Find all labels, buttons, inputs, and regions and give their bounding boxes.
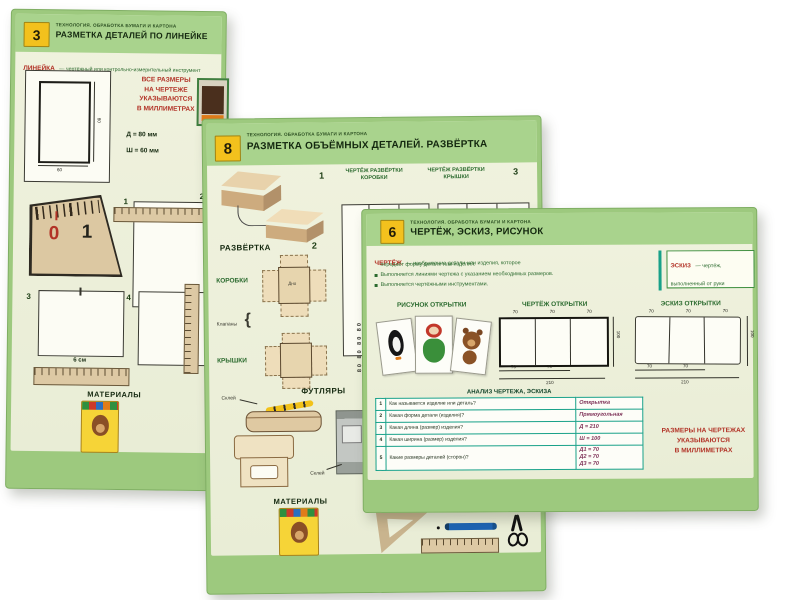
sketch-column-title: ЭСКИЗ ОТКРЫТКИ xyxy=(635,300,747,308)
box-stripe-decor xyxy=(280,509,318,517)
scissors-icon xyxy=(507,514,527,546)
width-value: Ш = 60 мм xyxy=(126,147,159,154)
ruler-icon xyxy=(33,367,129,386)
dimension-line xyxy=(613,317,614,367)
pencil-case-icon xyxy=(246,411,322,433)
poster-3: 3 ТЕХНОЛОГИЯ. ОБРАБОТКА БУМАГИ И КАРТОНА… xyxy=(5,9,227,492)
drawing-definition-line-2: передаёт форму детали или изделия. xyxy=(380,261,475,267)
dimension-line xyxy=(38,165,88,167)
bottom-label: Дно xyxy=(288,281,296,286)
picture-column-title: РИСУНОК ОТКРЫТКИ xyxy=(377,301,487,309)
glue-label: Склей xyxy=(221,395,235,401)
section-2-number: 2 xyxy=(312,241,317,251)
lid-development-column-title: ЧЕРТЁЖ РАЗВЁРТКИ КРЫШКИ xyxy=(425,167,487,182)
row-number: 4 xyxy=(376,434,386,446)
poster-3-title: РАЗМЕТКА ДЕТАЛЕЙ ПО ЛИНЕЙКЕ xyxy=(56,29,208,41)
postcard-panel-penguin xyxy=(376,318,419,376)
row-number: 1 xyxy=(376,398,386,410)
question-cell: Какая длина (размер) изделия? xyxy=(386,421,576,434)
postcard-picture xyxy=(377,311,489,378)
lid-label: КРЫШКИ xyxy=(217,357,247,364)
postcard-panel-bear xyxy=(450,318,492,376)
dimension-line xyxy=(747,316,748,366)
analysis-table-title: АНАЛИЗ ЧЕРТЕЖА, ЭСКИЗА xyxy=(375,389,643,396)
lid-development-icon xyxy=(265,332,328,391)
series-line: ТЕХНОЛОГИЯ. ОБРАБОТКА БУМАГИ И КАРТОНА xyxy=(410,219,531,225)
poster-8-number-tab: 8 xyxy=(215,135,241,161)
poster-6-sheet: 6 ТЕХНОЛОГИЯ. ОБРАБОТКА БУМАГИ И КАРТОНА… xyxy=(366,212,753,480)
poster-3-number-tab: 3 xyxy=(23,22,49,47)
millimeters-note: РАЗМЕРЫ НА ЧЕРТЕЖАХ УКАЗЫВАЮТСЯ В МИЛЛИМ… xyxy=(653,426,753,457)
drawing-column-title: ЧЕРТЁЖ ОТКРЫТКИ xyxy=(499,301,611,309)
row-number: 3 xyxy=(376,422,386,434)
red-tick-mark xyxy=(55,211,57,220)
row-number: 5 xyxy=(376,446,386,470)
answer-cell: Открытка xyxy=(576,397,643,409)
rectangle-drawing-panel: 80 60 xyxy=(24,70,111,183)
bullet-icon xyxy=(375,274,378,277)
bullet-icon xyxy=(375,284,378,287)
dimension-line xyxy=(499,370,570,371)
segment-dimension-label: 70 xyxy=(647,364,652,369)
postcard-panel-matryoshka xyxy=(415,316,453,374)
fold-dimension-label: 70 xyxy=(587,309,592,314)
sketch-definition-box: ЭСКИЗ — чертёж, выполненный от руки xyxy=(666,250,754,288)
bear-illustration xyxy=(91,415,108,436)
box-development-icon: Дно xyxy=(262,254,327,317)
answer-line: Д3 = 70 xyxy=(580,460,640,467)
box-label: КОРОБКИ xyxy=(216,277,248,284)
height-dimension-label: 100 xyxy=(750,330,755,338)
dimension-line xyxy=(93,82,95,162)
pointer-line xyxy=(240,399,258,404)
ruler-closeup-face: 0 1 xyxy=(31,196,121,274)
materials-heading: МАТЕРИАЛЫ xyxy=(11,389,217,401)
note-line: РАЗМЕРЫ НА ЧЕРТЕЖАХ xyxy=(653,426,753,437)
answer-cell: Д = 210 xyxy=(576,421,643,433)
brace-icon: } xyxy=(245,311,251,329)
vertical-ruler-icon xyxy=(183,284,199,374)
pencil-tip-icon xyxy=(437,526,440,529)
fold-dimension-label: 70 xyxy=(649,309,654,314)
note-line: В МИЛЛИМЕТРАХ xyxy=(653,446,753,457)
ruler-digit-0: 0 xyxy=(49,223,60,245)
materials-heading: МАТЕРИАЛЫ xyxy=(240,496,360,506)
divider-bar xyxy=(658,250,661,290)
segment-dimension-label: 70 xyxy=(511,364,516,369)
fold-dimension-label: 70 xyxy=(513,309,518,314)
section-1-number: 1 xyxy=(319,171,324,181)
postcard-drawing: 70 70 70 100 70 70 210 xyxy=(499,309,621,388)
question-cell: Какая форма детали (изделия)? xyxy=(386,409,576,422)
poster-6-title: ЧЕРТЁЖ, ЭСКИЗ, РИСУНОК xyxy=(410,226,543,238)
fold-dimension-label: 70 xyxy=(686,308,691,313)
answer-cell: Ш = 100 xyxy=(576,433,643,445)
cases-heading: ФУТЛЯРЫ xyxy=(301,386,345,395)
drawing-definition-line-4: Выполняется чертёжными инструментами. xyxy=(381,281,489,288)
materials-box-image xyxy=(81,401,120,453)
length-value: Д = 80 мм xyxy=(126,131,157,138)
step-3-panel xyxy=(38,290,125,357)
step-3-label: 3 xyxy=(26,292,31,301)
segment-dimension-label: 70 xyxy=(683,363,688,368)
poster-6-number-tab: 6 xyxy=(380,220,404,244)
fold-dimension-label: 70 xyxy=(723,308,728,313)
note-line: УКАЗЫВАЮТСЯ xyxy=(653,436,753,447)
case-development-icon xyxy=(234,435,295,488)
total-dimension-label: 210 xyxy=(681,379,689,384)
poster-6: 6 ТЕХНОЛОГИЯ. ОБРАБОТКА БУМАГИ И КАРТОНА… xyxy=(361,207,759,513)
glue-label: Склей xyxy=(310,471,324,477)
width-dimension-label: 60 xyxy=(57,167,62,172)
ruler-icon xyxy=(421,538,499,554)
ruler-ticks xyxy=(35,200,100,220)
tick-mark xyxy=(79,288,81,296)
step-4-label: 4 xyxy=(126,293,131,302)
height-dimension-label: 80 xyxy=(97,118,102,123)
box-stripe-decor xyxy=(82,402,118,410)
flaps-label: Клапаны xyxy=(217,321,238,327)
materials-box-image xyxy=(279,508,320,556)
measure-label: 6 см xyxy=(38,357,122,364)
row-number: 2 xyxy=(376,410,386,422)
answer-cell: Д1 = 70 Д2 = 70 Д3 = 70 xyxy=(576,445,643,469)
total-dimension-label: 210 xyxy=(546,380,554,385)
ruler-digit-1: 1 xyxy=(82,221,93,243)
box-development-column-title: ЧЕРТЁЖ РАЗВЁРТКИ КОРОБКИ xyxy=(343,168,405,183)
rectangle-drawing xyxy=(38,81,91,164)
analysis-table: 1 Как называется изделие или деталь? Отк… xyxy=(375,397,643,471)
answer-cell: Прямоугольная xyxy=(576,409,643,421)
pen-icon xyxy=(445,523,497,531)
question-cell: Какие размеры деталей (сторон)? xyxy=(386,445,576,470)
dimension-line xyxy=(635,369,705,370)
question-cell: Какая ширина (размер) изделия? xyxy=(386,433,576,446)
connector-line xyxy=(237,205,268,226)
table-row: 5 Какие размеры деталей (сторон)? Д1 = 7… xyxy=(376,445,643,470)
sketch-term: ЭСКИЗ xyxy=(670,263,690,269)
fold-dimension-label: 70 xyxy=(550,309,555,314)
section-3-number: 3 xyxy=(513,166,518,176)
poster-photo-stage: 3 ТЕХНОЛОГИЯ. ОБРАБОТКА БУМАГИ И КАРТОНА… xyxy=(0,0,800,600)
bear-illustration xyxy=(290,522,307,543)
height-dimension-label: 100 xyxy=(616,331,621,339)
step-1-label: 1 xyxy=(124,197,129,206)
poster-3-sheet: 3 ТЕХНОЛОГИЯ. ОБРАБОТКА БУМАГИ И КАРТОНА… xyxy=(11,14,222,453)
drawing-definition-line-3: Выполняется линиями чертежа с указанием … xyxy=(381,271,554,278)
segment-dimension-label: 70 xyxy=(547,364,552,369)
question-cell: Как называется изделие или деталь? xyxy=(386,397,576,410)
open-tray-icon xyxy=(265,209,323,244)
ruler-closeup-icon: 0 1 xyxy=(29,194,124,277)
razvertka-heading: РАЗВЁРТКА xyxy=(220,243,271,253)
postcard-sketch: 70 70 70 100 70 70 210 xyxy=(635,308,757,387)
